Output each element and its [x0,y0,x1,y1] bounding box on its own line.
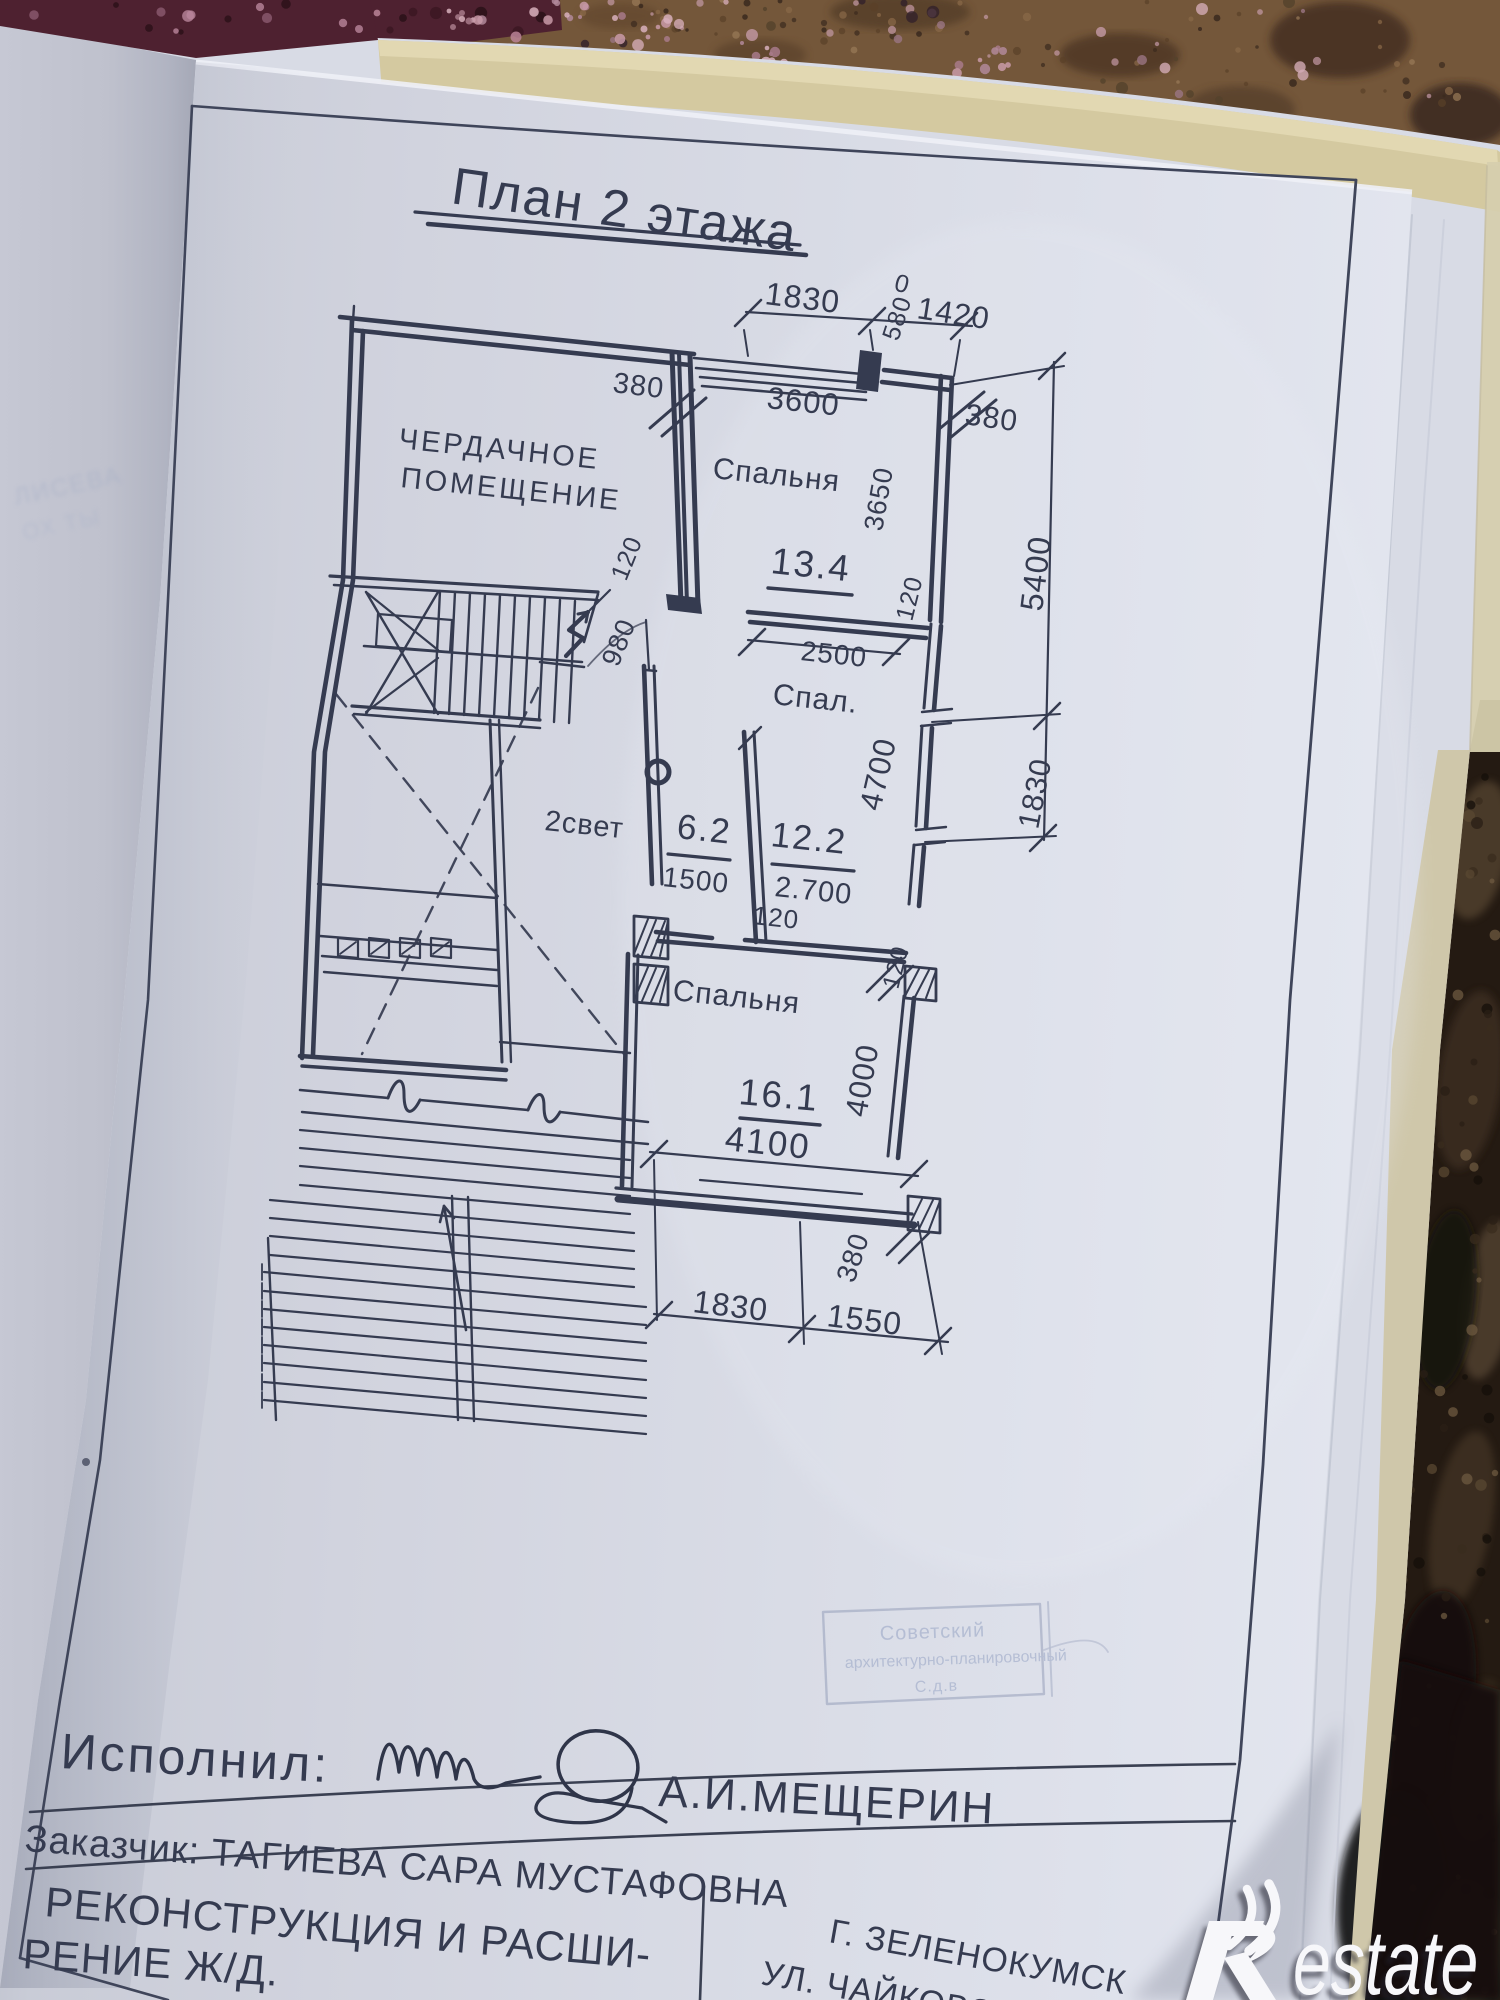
svg-text:380: 380 [611,367,666,405]
svg-text:13.4: 13.4 [769,540,853,589]
svg-text:Советский: Советский [879,1619,985,1645]
svg-text:16.1: 16.1 [737,1071,820,1119]
svg-text:12.2: 12.2 [769,815,849,862]
svg-text:С.д.в: С.д.в [915,1677,959,1696]
svg-text:120: 120 [751,900,800,935]
svg-text:estate: estate [1293,1912,1478,2000]
svg-text:6.2: 6.2 [675,807,733,851]
